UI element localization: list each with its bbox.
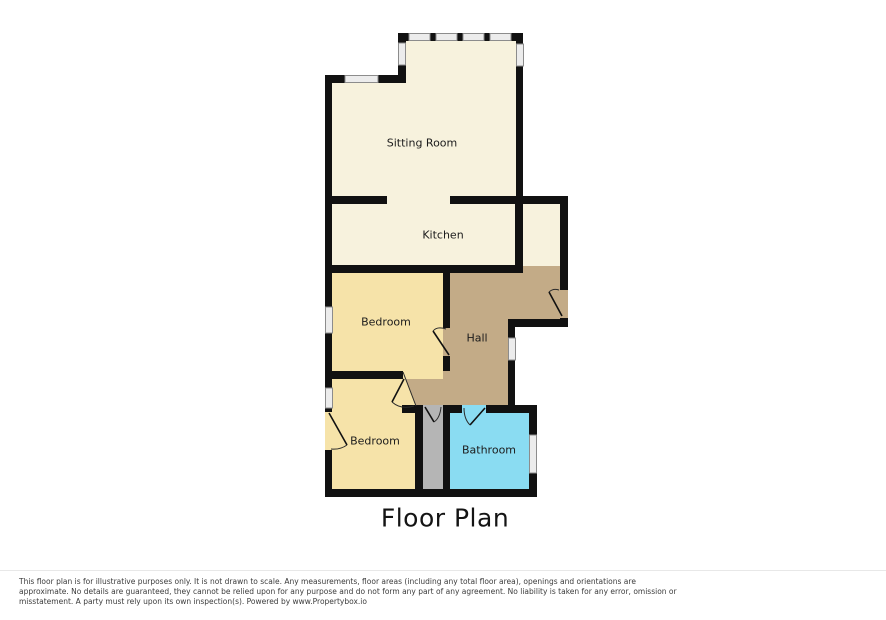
- window: [509, 338, 516, 360]
- window: [530, 435, 537, 473]
- label-kitchen: Kitchen: [422, 229, 463, 242]
- window: [326, 307, 333, 333]
- floor-plan-page: Sitting Room Kitchen Bedroom Hall Bedroo…: [0, 0, 886, 620]
- window: [399, 43, 406, 65]
- window: [463, 34, 484, 41]
- label-bedroom-1: Bedroom: [361, 316, 411, 329]
- label-bedroom-2: Bedroom: [350, 435, 400, 448]
- disclaimer-text: This floor plan is for illustrative purp…: [19, 577, 677, 607]
- window: [345, 76, 378, 83]
- footer-divider: [0, 570, 886, 571]
- window: [409, 34, 430, 41]
- page-title: Floor Plan: [381, 504, 509, 533]
- label-bathroom: Bathroom: [462, 444, 516, 457]
- disclaimer-line-3: misstatement. A party must rely upon its…: [19, 597, 677, 607]
- window: [517, 44, 524, 66]
- label-sitting-room: Sitting Room: [387, 137, 458, 150]
- disclaimer-line-1: This floor plan is for illustrative purp…: [19, 577, 677, 587]
- disclaimer-line-2: approximate. No details are guaranteed, …: [19, 587, 677, 597]
- label-hall: Hall: [466, 332, 487, 345]
- window: [326, 388, 333, 408]
- window: [490, 34, 511, 41]
- window: [436, 34, 457, 41]
